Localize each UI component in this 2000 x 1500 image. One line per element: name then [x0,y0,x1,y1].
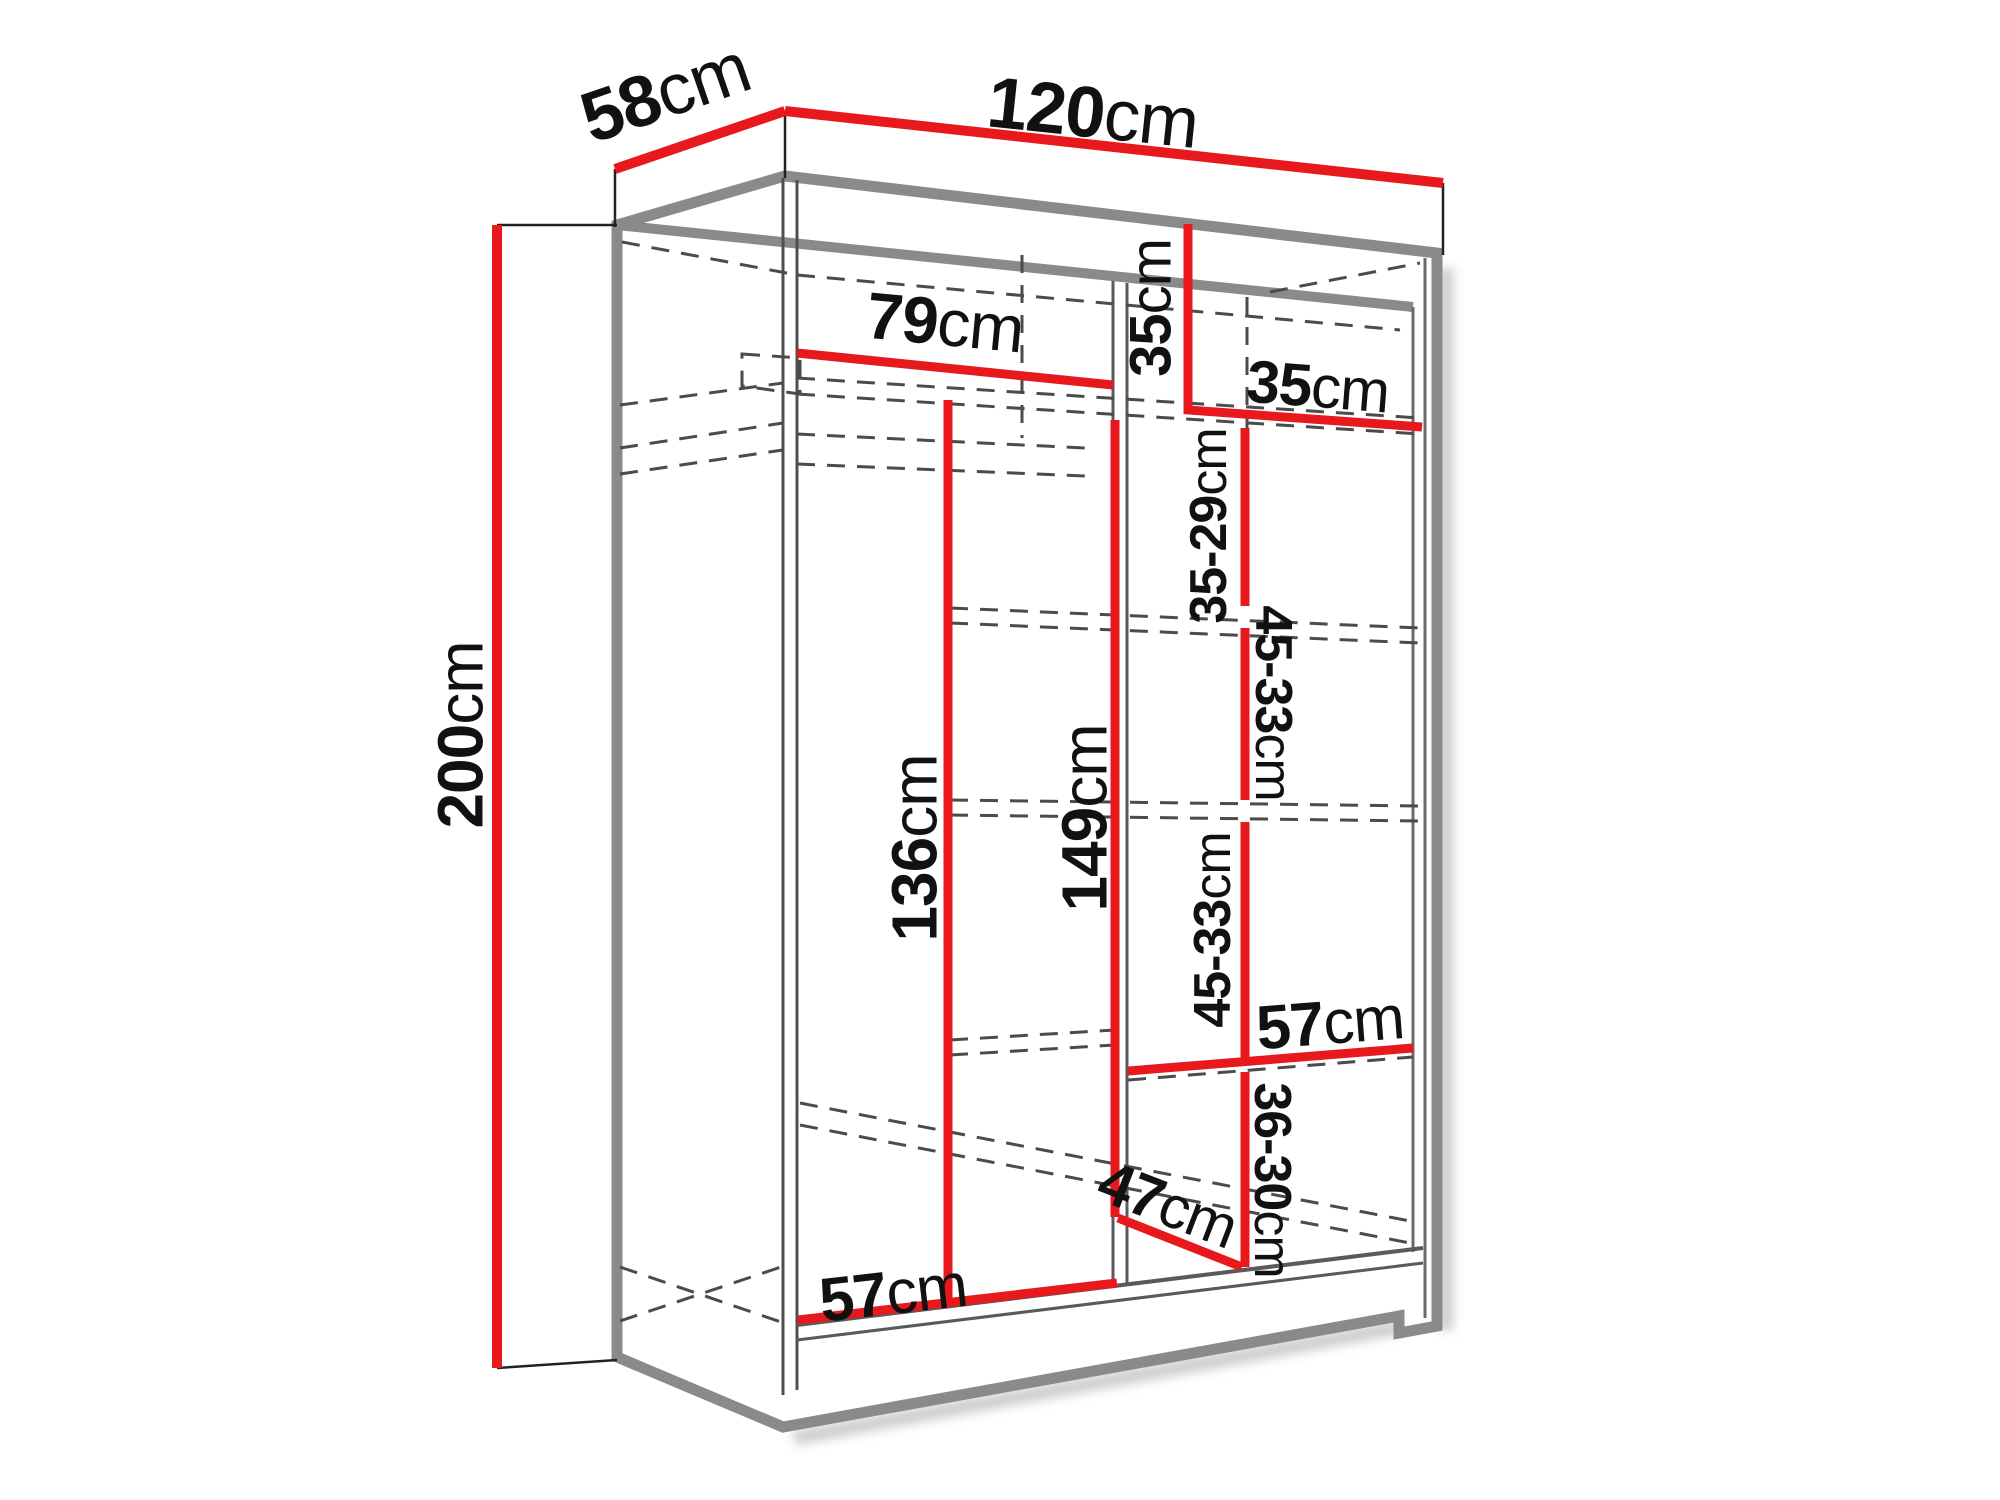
dimension-label-right-section-width: 35cm [1244,348,1392,426]
dimension-label-right-column-height: 149cm [1048,724,1120,911]
dimension-labels: 58cm 120cm 200cm 79cm 35cm 35cm 35-29cm … [424,27,1406,1336]
dimension-label-depth: 58cm [571,27,760,159]
dimension-label-top-section-height: 35cm [1118,239,1183,377]
dimension-label-shelf-gap-2: 45-33cm [1244,605,1302,800]
dimension-label-shelf-gap-1: 35-29cm [1180,428,1238,623]
dimension-label-shelf-gap-4: 36-30cm [1243,1082,1301,1277]
dimension-label-hanging-height: 136cm [878,754,950,941]
wardrobe-dimension-diagram: 58cm 120cm 200cm 79cm 35cm 35cm 35-29cm … [0,0,2000,1500]
dimension-label-shelf-gap-3: 45-33cm [1184,832,1242,1027]
dimension-label-left-section-width: 79cm [863,278,1027,367]
dimension-label-right-shelf-width: 57cm [1254,983,1407,1063]
dimension-label-bottom-shelf-width: 57cm [816,1251,970,1336]
diagram-canvas: 58cm 120cm 200cm 79cm 35cm 35cm 35-29cm … [0,0,2000,1500]
dimension-label-width: 120cm [984,62,1202,164]
dimension-label-height: 200cm [424,641,496,828]
